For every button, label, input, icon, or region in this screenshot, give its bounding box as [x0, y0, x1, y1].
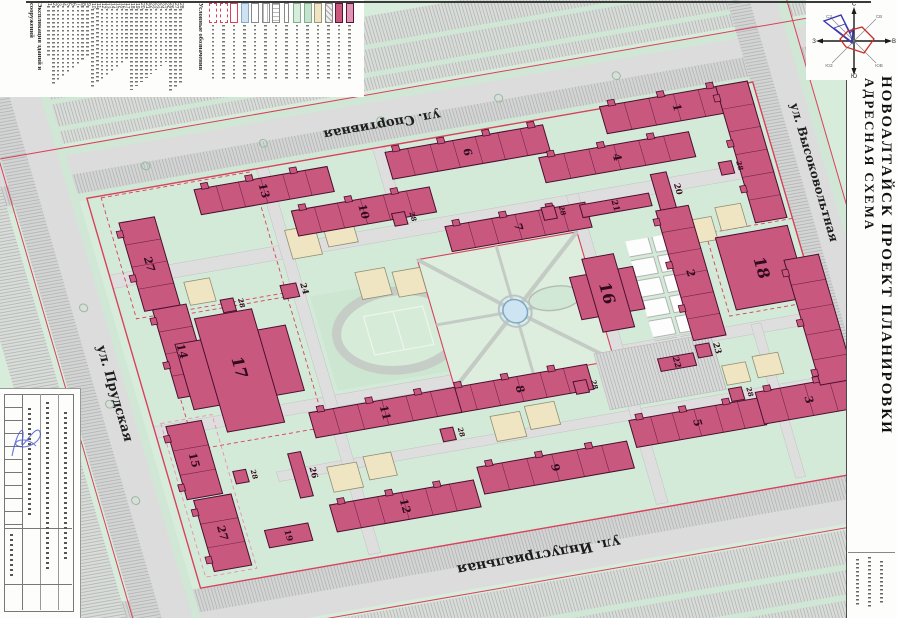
explication-item-text [111, 9, 114, 73]
explication-item-text [155, 9, 158, 70]
title-line-2: АДРЕСНАЯ СХЕМА [861, 78, 877, 496]
compass-w: З [812, 39, 816, 45]
explication-item-text [130, 9, 133, 90]
legend-swatches [208, 3, 355, 80]
swatch-stripes [325, 3, 333, 23]
swatch-blue-fill [241, 3, 249, 23]
drawing-sheet: 1361104271472120216171823222481126152719… [0, 0, 897, 618]
corner-stamp-text [880, 561, 883, 605]
swatch-label [296, 25, 299, 80]
swatch-label [306, 25, 309, 80]
explication-item-text [47, 6, 50, 56]
swatch-label [275, 25, 278, 80]
swatch-label [285, 25, 288, 80]
compass-sw: ЮЗ [825, 63, 833, 68]
stamp-text [64, 412, 67, 562]
explication-item-text [160, 9, 163, 66]
explication-item-text [165, 9, 168, 62]
explication-item-text [72, 6, 75, 69]
explication-item-text [106, 9, 109, 77]
explication-item-text [62, 6, 65, 77]
swatch-label [264, 25, 267, 80]
swatch-label [327, 25, 330, 80]
swatch-green-a [293, 3, 301, 23]
title-block-line [58, 394, 59, 610]
building-23 [695, 343, 712, 358]
wind-rose-blue [824, 15, 853, 43]
explication-item-text [169, 9, 172, 91]
legend-swatch [218, 3, 229, 80]
explication-item-text [179, 9, 182, 83]
explication-item-text [67, 6, 70, 73]
compass-nw: СЗ [826, 14, 832, 19]
service-building [524, 401, 560, 429]
swatch-label [254, 25, 257, 80]
explication-item-text [77, 6, 80, 65]
corner-stamp [848, 552, 895, 615]
swatch-label [348, 25, 351, 80]
explication-item-text [91, 9, 94, 89]
legend-swatch [313, 3, 324, 80]
legend-swatch [260, 3, 271, 80]
swatch-grid-b [272, 3, 280, 23]
explication-item-text [150, 9, 153, 74]
explication-item-text [174, 9, 177, 87]
swatch-label [338, 25, 341, 80]
explication-items: 1234567891011121314151617181920212223242… [46, 3, 183, 91]
swatch-red-dash-b [220, 3, 228, 23]
stamp-text [10, 534, 13, 578]
legend: Экспликация зданий и сооружений 12345678… [26, 3, 360, 96]
swatch-magenta-a [335, 3, 343, 23]
service-building [752, 352, 784, 378]
legend-swatch [334, 3, 345, 80]
corner-stamp-text [868, 557, 871, 609]
compass-ne: СВ [876, 14, 882, 19]
title-block-line [4, 584, 72, 585]
explication-item-text [101, 9, 104, 81]
explication-item-text [145, 9, 148, 78]
wind-rose-red [840, 27, 874, 53]
swatch-label [222, 25, 225, 80]
title-block [0, 388, 78, 618]
legend-swatch [250, 3, 261, 80]
explication-item: 28 [178, 3, 183, 91]
explication-item-text [121, 9, 124, 65]
swatch-red-outline [230, 3, 238, 23]
legend-swatch [292, 3, 303, 80]
swatch-magenta-b [346, 3, 354, 23]
legend-swatch [281, 3, 292, 80]
legend-swatch [229, 3, 240, 80]
legend-swatch [271, 3, 282, 80]
explication-item-text [52, 6, 55, 85]
corner-stamp-text [856, 559, 859, 607]
building-24 [280, 283, 300, 299]
explication-item-text [57, 6, 60, 81]
service-building [722, 362, 751, 385]
legend-swatch [302, 3, 313, 80]
compass-e: В [892, 39, 896, 45]
wind-rose-blue-inner [834, 24, 852, 42]
legend-swatch [323, 3, 334, 80]
explication-header: Экспликация зданий и сооружений [26, 3, 43, 93]
explication-item-text [81, 6, 84, 61]
swatch-red-dash-a [209, 3, 217, 23]
legend-swatch [344, 3, 355, 80]
compass-se: ЮВ [875, 63, 883, 68]
swatch-label [233, 25, 236, 80]
compass-s: Ю [851, 74, 857, 79]
title-line-1: НОВОАЛТАЙСК ПРОЕКТ ПЛАНИРОВКИ [877, 76, 894, 496]
explication-item-text [86, 6, 89, 57]
explication-item-text [135, 9, 138, 86]
swatch-label [212, 25, 215, 80]
explication-item-text [116, 9, 119, 69]
sheet-title: НОВОАЛТАЙСК ПРОЕКТ ПЛАНИРОВКИ АДРЕСНАЯ С… [861, 76, 894, 496]
explication-item-text [125, 9, 128, 61]
swatch-white-fill [251, 3, 259, 23]
symbols-header: Условные обозначения [187, 3, 204, 93]
compass-n: С [852, 3, 857, 8]
explication-item-text [140, 9, 143, 82]
explication-item-text [96, 8, 99, 84]
approval-scribble [6, 416, 52, 468]
swatch-beige-fill [314, 3, 322, 23]
service-building [363, 452, 397, 480]
legend-swatch [208, 3, 219, 80]
swatch-label [317, 25, 320, 80]
swatch-narrow [284, 3, 289, 23]
compass-rose: С Ю З В СЗ СВ ЮЗ ЮВ [812, 3, 896, 79]
legend-swatch [239, 3, 250, 80]
swatch-label [243, 25, 246, 80]
swatch-green-b [304, 3, 312, 23]
swatch-grid-a [262, 3, 270, 23]
title-block-line [4, 528, 72, 529]
